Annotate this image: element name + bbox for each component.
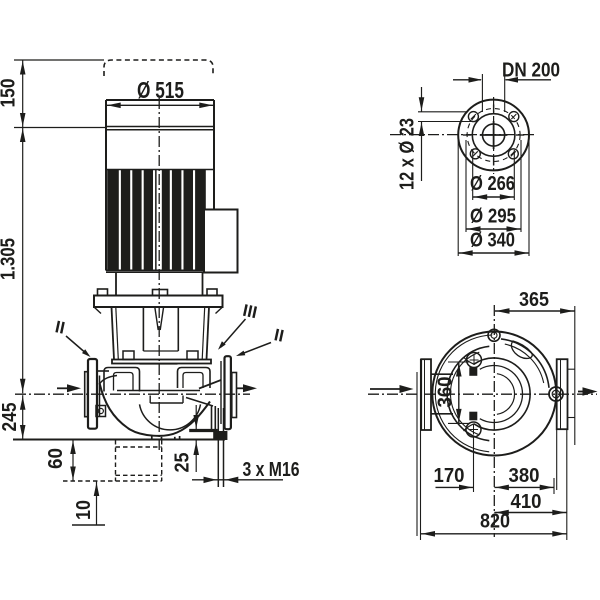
svg-text:10: 10	[73, 500, 95, 520]
svg-text:25: 25	[172, 453, 194, 473]
svg-text:410: 410	[511, 491, 542, 513]
svg-text:1.305: 1.305	[0, 238, 20, 280]
svg-text:380: 380	[509, 465, 540, 487]
svg-text:3 x M16: 3 x M16	[243, 459, 300, 481]
svg-text:150: 150	[0, 79, 20, 108]
svg-text:360: 360	[435, 377, 457, 408]
svg-text:820: 820	[480, 511, 510, 533]
svg-text:170: 170	[434, 465, 465, 487]
svg-text:12 x Ø 23: 12 x Ø 23	[397, 118, 419, 190]
svg-text:Ø 266: Ø 266	[470, 173, 515, 195]
svg-text:365: 365	[519, 289, 549, 311]
svg-text:DN 200: DN 200	[502, 60, 560, 82]
svg-text:245: 245	[0, 403, 21, 432]
svg-text:Ø 340: Ø 340	[470, 230, 515, 252]
svg-text:60: 60	[45, 448, 67, 469]
svg-text:Ø 295: Ø 295	[470, 206, 516, 228]
